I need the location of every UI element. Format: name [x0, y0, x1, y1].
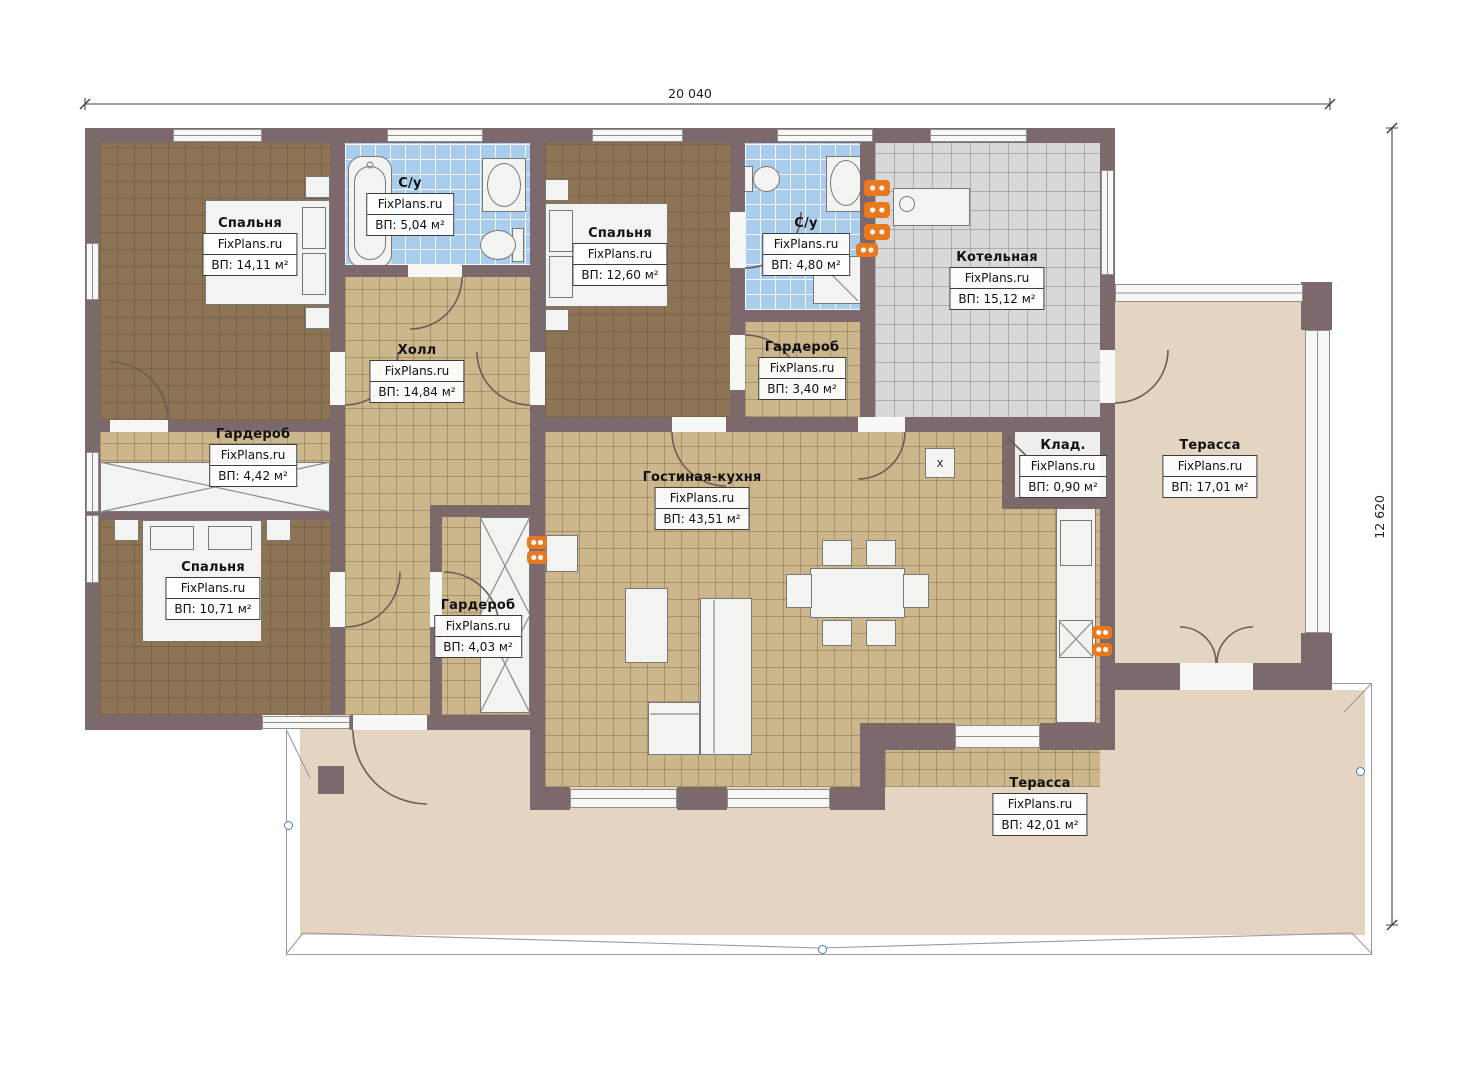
nightstand — [266, 518, 291, 541]
room-name: Холл — [369, 343, 464, 358]
nightstand — [305, 307, 330, 329]
wall — [677, 787, 727, 810]
watermark: FixPlans.ru — [763, 234, 849, 255]
pillow — [208, 526, 252, 550]
terrace-glazing — [1115, 284, 1303, 302]
pillow — [302, 253, 326, 295]
window — [777, 129, 873, 142]
toilet-tank — [744, 166, 753, 192]
window — [262, 716, 350, 729]
room-label-hall: Холл FixPlans.ruВП: 14,84 м² — [369, 343, 464, 403]
chair — [866, 540, 896, 566]
window — [86, 243, 99, 300]
window — [86, 515, 99, 583]
room-name: Клад. — [1019, 438, 1107, 453]
wall — [530, 405, 545, 810]
wall — [726, 417, 858, 432]
room-name: Котельная — [949, 250, 1044, 265]
chair — [822, 540, 852, 566]
room-name: Гостиная-кухня — [643, 470, 762, 485]
radiator — [527, 551, 547, 564]
room-label-wardrobe-3: Гардероб FixPlans.ruВП: 4,03 м² — [434, 598, 522, 658]
room-area: ВП: 10,71 м² — [166, 599, 259, 619]
room-label-boiler-room: Котельная FixPlans.ruВП: 15,12 м² — [949, 250, 1044, 310]
wall — [330, 627, 345, 715]
room-info-box: FixPlans.ruВП: 4,03 м² — [434, 615, 522, 658]
window — [592, 129, 683, 142]
room-info-box: FixPlans.ruВП: 5,04 м² — [366, 193, 454, 236]
wall — [330, 143, 345, 352]
nightstand — [305, 176, 330, 198]
survey-marker — [284, 821, 293, 830]
door-opening — [530, 352, 545, 405]
hatch-box: x — [925, 448, 955, 478]
terrace-glazing — [1305, 330, 1330, 633]
window — [727, 789, 830, 808]
wall — [905, 417, 1115, 432]
wall — [730, 268, 745, 335]
door-opening — [672, 417, 726, 432]
room-area: ВП: 42,01 м² — [993, 815, 1086, 835]
boiler-dial — [899, 196, 915, 212]
door-opening — [730, 335, 745, 390]
chair — [866, 620, 896, 646]
room-area: ВП: 14,84 м² — [370, 382, 463, 402]
radiator — [1092, 643, 1112, 656]
room-info-box: FixPlans.ruВП: 10,71 м² — [165, 577, 260, 620]
room-area: ВП: 14,11 м² — [203, 255, 296, 275]
watermark: FixPlans.ru — [370, 361, 463, 382]
room-info-box: FixPlans.ruВП: 14,11 м² — [202, 233, 297, 276]
kitchen-sink — [1060, 520, 1092, 566]
window — [173, 129, 262, 142]
door-opening — [110, 420, 168, 432]
door-opening — [1100, 350, 1115, 403]
wall — [1002, 497, 1115, 509]
floor-plan: x — [0, 0, 1474, 1080]
window — [930, 129, 1027, 142]
wall — [85, 420, 110, 432]
radiator — [864, 180, 890, 196]
room-name: С/у — [366, 176, 454, 191]
chair — [822, 620, 852, 646]
radiator — [1092, 626, 1112, 639]
wall — [745, 310, 860, 322]
room-name: Спальня — [202, 216, 297, 231]
room-label-bedroom-1: Спальня FixPlans.ruВП: 14,11 м² — [202, 216, 297, 276]
door-opening — [330, 352, 345, 405]
stove — [1059, 620, 1093, 658]
room-area: ВП: 0,90 м² — [1020, 477, 1106, 497]
survey-marker — [1356, 767, 1365, 776]
radiator — [856, 243, 878, 257]
sink — [487, 163, 521, 207]
room-label-storage: Клад. FixPlans.ruВП: 0,90 м² — [1019, 438, 1107, 498]
sink — [830, 160, 862, 206]
pillow — [549, 256, 573, 298]
door-opening — [330, 572, 345, 627]
chair — [903, 574, 929, 608]
room-label-bathroom-1: С/у FixPlans.ruВП: 5,04 м² — [366, 176, 454, 236]
pillow — [549, 210, 573, 252]
door-opening — [1180, 663, 1253, 690]
watermark: FixPlans.ru — [1163, 456, 1256, 477]
watermark: FixPlans.ru — [950, 268, 1043, 289]
wall — [345, 265, 408, 277]
room-name: Гардероб — [758, 340, 846, 355]
room-info-box: FixPlans.ruВП: 43,51 м² — [654, 487, 749, 530]
room-name: С/у — [762, 216, 850, 231]
room-area: ВП: 12,60 м² — [573, 265, 666, 285]
radiator — [864, 224, 890, 240]
room-name: Гардероб — [434, 598, 522, 613]
room-area: ВП: 3,40 м² — [759, 379, 845, 399]
wall — [530, 143, 545, 352]
room-name: Гардероб — [209, 427, 297, 442]
dining-table — [810, 568, 905, 618]
wall — [430, 505, 530, 517]
wall — [427, 715, 545, 730]
wall — [1002, 432, 1015, 497]
wall — [730, 390, 745, 417]
door-opening — [408, 265, 462, 277]
room-label-wardrobe-1: Гардероб FixPlans.ruВП: 4,42 м² — [209, 427, 297, 487]
watermark: FixPlans.ru — [367, 194, 453, 215]
wall — [1100, 663, 1180, 690]
watermark: FixPlans.ru — [573, 244, 666, 265]
room-info-box: FixPlans.ruВП: 14,84 м² — [369, 360, 464, 403]
room-area: ВП: 15,12 м² — [950, 289, 1043, 309]
pillow — [302, 207, 326, 249]
door-opening — [858, 417, 905, 432]
watermark: FixPlans.ru — [210, 445, 296, 466]
survey-marker — [818, 945, 827, 954]
dimension-width: 20 040 — [668, 86, 712, 101]
room-info-box: FixPlans.ruВП: 0,90 м² — [1019, 455, 1107, 498]
window — [570, 789, 677, 808]
nightstand — [545, 179, 569, 201]
radiator — [527, 536, 547, 549]
room-name: Спальня — [572, 226, 667, 241]
wall — [530, 787, 570, 810]
watermark: FixPlans.ru — [166, 578, 259, 599]
room-area: ВП: 4,42 м² — [210, 466, 296, 486]
wall — [730, 143, 745, 212]
window — [1101, 170, 1114, 275]
watermark: FixPlans.ru — [993, 794, 1086, 815]
toilet — [480, 230, 516, 260]
room-info-box: FixPlans.ruВП: 15,12 м² — [949, 267, 1044, 310]
chair — [786, 574, 812, 608]
room-info-box: FixPlans.ruВП: 12,60 м² — [572, 243, 667, 286]
room-info-box: FixPlans.ruВП: 42,01 м² — [992, 793, 1087, 836]
window — [955, 725, 1040, 748]
nightstand — [545, 309, 569, 331]
sofa — [700, 598, 752, 755]
room-area: ВП: 17,01 м² — [1163, 477, 1256, 497]
wall — [885, 723, 955, 750]
room-info-box: FixPlans.ruВП: 4,42 м² — [209, 444, 297, 487]
watermark: FixPlans.ru — [1020, 456, 1106, 477]
wall — [85, 715, 262, 730]
room-area: ВП: 5,04 м² — [367, 215, 453, 235]
window — [387, 129, 483, 142]
room-area: ВП: 4,80 м² — [763, 255, 849, 275]
wall — [430, 517, 442, 572]
room-name: Терасса — [1162, 438, 1257, 453]
door-opening — [730, 212, 745, 268]
terrace-pillar — [1301, 633, 1332, 690]
terrace-pillar — [318, 766, 344, 794]
room-name: Терасса — [992, 776, 1087, 791]
room-label-living-kitchen: Гостиная-кухня FixPlans.ruВП: 43,51 м² — [643, 470, 762, 530]
room-label-bedroom-3: Спальня FixPlans.ruВП: 10,71 м² — [165, 560, 260, 620]
wall — [545, 417, 672, 432]
room-label-terrace-main: Терасса FixPlans.ruВП: 42,01 м² — [992, 776, 1087, 836]
dimension-height: 12 620 — [1372, 495, 1387, 539]
hatch-cross: x — [936, 456, 943, 470]
pillow — [150, 526, 194, 550]
wall — [462, 265, 530, 277]
door-opening — [353, 715, 427, 730]
watermark: FixPlans.ru — [655, 488, 748, 509]
room-label-wardrobe-2: Гардероб FixPlans.ruВП: 3,40 м² — [758, 340, 846, 400]
wall — [85, 512, 345, 520]
wall — [830, 787, 885, 810]
toilet — [753, 166, 780, 192]
wall — [1040, 723, 1115, 750]
watermark: FixPlans.ru — [203, 234, 296, 255]
room-label-bathroom-2: С/у FixPlans.ruВП: 4,80 м² — [762, 216, 850, 276]
terrace-pillar — [1301, 282, 1332, 330]
watermark: FixPlans.ru — [759, 358, 845, 379]
sofa — [648, 702, 700, 755]
room-info-box: FixPlans.ruВП: 3,40 м² — [758, 357, 846, 400]
room-label-bedroom-2: Спальня FixPlans.ruВП: 12,60 м² — [572, 226, 667, 286]
coffee-table — [625, 588, 668, 663]
room-area: ВП: 43,51 м² — [655, 509, 748, 529]
room-name: Спальня — [165, 560, 260, 575]
watermark: FixPlans.ru — [435, 616, 521, 637]
cabinet — [546, 535, 578, 572]
nightstand — [114, 518, 139, 541]
room-info-box: FixPlans.ruВП: 17,01 м² — [1162, 455, 1257, 498]
room-label-terrace-right: Терасса FixPlans.ruВП: 17,01 м² — [1162, 438, 1257, 498]
room-info-box: FixPlans.ruВП: 4,80 м² — [762, 233, 850, 276]
window — [86, 452, 99, 512]
room-area: ВП: 4,03 м² — [435, 637, 521, 657]
radiator — [864, 202, 890, 218]
